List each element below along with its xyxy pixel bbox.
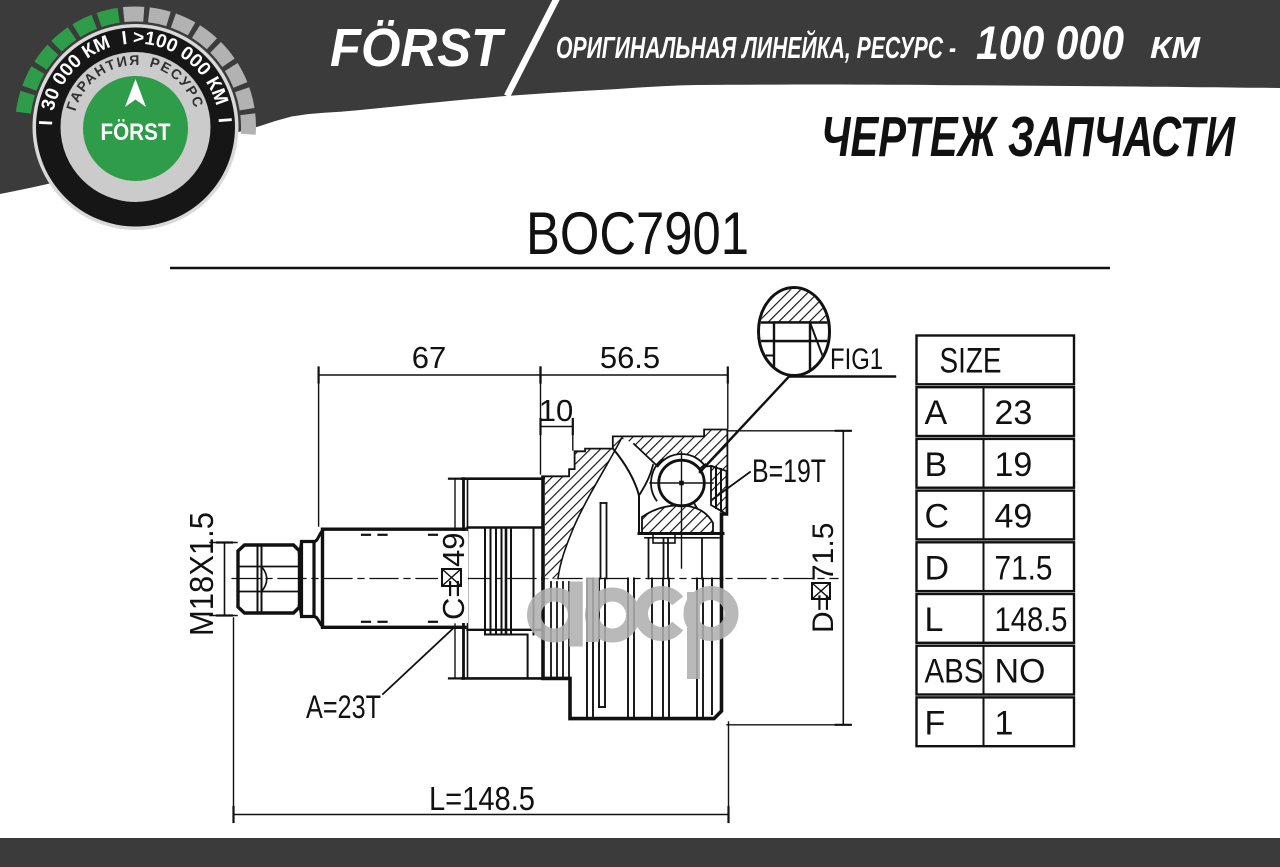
svg-text:BOC7901: BOC7901 (526, 200, 749, 267)
svg-text:148.5: 148.5 (995, 601, 1068, 639)
svg-text:B: B (925, 446, 948, 484)
svg-text:M18X1.5: M18X1.5 (183, 512, 220, 636)
svg-text:FÖRST: FÖRST (101, 119, 171, 146)
svg-text:F: F (925, 704, 946, 742)
svg-text:56.5: 56.5 (600, 340, 660, 375)
svg-text:10: 10 (539, 393, 573, 428)
svg-text:FIG1: FIG1 (830, 343, 883, 376)
svg-text:ЧЕРТЕЖ ЗАПЧАСТИ: ЧЕРТЕЖ ЗАПЧАСТИ (821, 105, 1236, 169)
svg-text:L=148.5: L=148.5 (429, 780, 535, 817)
svg-text:71.5: 71.5 (807, 523, 840, 581)
svg-text:71.5: 71.5 (995, 549, 1053, 587)
svg-text:100 000: 100 000 (976, 16, 1124, 69)
svg-text:NO: NO (995, 653, 1046, 691)
svg-text:A=23T: A=23T (306, 689, 381, 725)
svg-text:L: L (925, 601, 944, 639)
svg-text:ОРИГИНАЛЬНАЯ ЛИНЕЙКА, РЕСУРС -: ОРИГИНАЛЬНАЯ ЛИНЕЙКА, РЕСУРС - (556, 29, 956, 65)
svg-text:ABS: ABS (925, 653, 984, 691)
svg-text:SIZE: SIZE (940, 342, 1002, 381)
svg-text:FÖRST: FÖRST (330, 18, 506, 78)
svg-text:23: 23 (995, 394, 1033, 432)
svg-text:A: A (925, 394, 948, 432)
svg-text:67: 67 (412, 340, 446, 375)
svg-text:B=19T: B=19T (752, 453, 826, 489)
svg-text:КМ: КМ (1150, 30, 1201, 65)
svg-text:19: 19 (995, 446, 1033, 484)
svg-text:49: 49 (436, 533, 471, 567)
svg-text:C: C (925, 498, 950, 536)
svg-text:1: 1 (995, 704, 1014, 742)
svg-text:D: D (925, 549, 950, 587)
svg-text:49: 49 (995, 498, 1033, 536)
